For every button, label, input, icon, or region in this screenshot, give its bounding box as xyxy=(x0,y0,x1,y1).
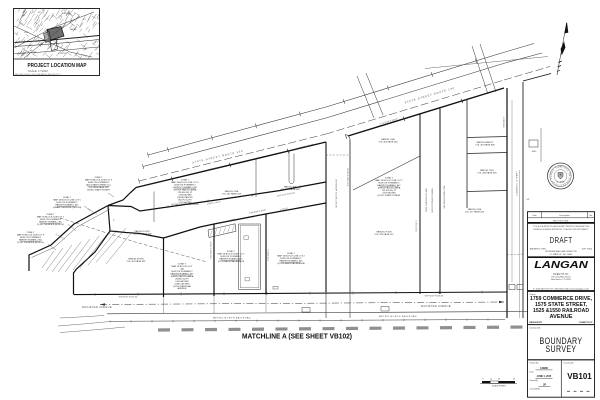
svg-text:METRO-NORTH RAILROAD: METRO-NORTH RAILROAD xyxy=(213,316,251,319)
svg-text:AVENUE: AVENUE xyxy=(550,314,573,320)
svg-text:CONN TPKE: CONN TPKE xyxy=(58,53,67,55)
svg-text:Drawn By: Drawn By xyxy=(530,379,538,382)
svg-text:No.: No. xyxy=(589,215,593,217)
svg-text:N 02°32'05″ E 185.07': N 02°32'05″ E 185.07' xyxy=(211,241,213,259)
svg-text:No. 70085: No. 70085 xyxy=(557,182,565,184)
svg-text:15: 15 xyxy=(490,379,492,381)
svg-text:VOL 407 PAGE 498: VOL 407 PAGE 498 xyxy=(476,144,496,147)
svg-text:S 01°14'40″ W 105.50': S 01°14'40″ W 105.50' xyxy=(348,167,350,186)
svg-text:MAP 18 BLOCK 1238 LOT 1A: MAP 18 BLOCK 1238 LOT 1A xyxy=(443,185,446,209)
svg-text:@760 TURNPIKE (NORTH): @760 TURNPIKE (NORTH) xyxy=(17,242,44,244)
svg-text:@759 RAILROAD AVENUE: @759 RAILROAD AVENUE xyxy=(218,260,245,263)
svg-text:SHED: SHED xyxy=(532,151,537,153)
svg-text:SUP. 70005: SUP. 70005 xyxy=(582,248,592,250)
svg-text:VB101: VB101 xyxy=(567,372,592,381)
svg-text:CT STATE LIC. NO. 70085: CT STATE LIC. NO. 70085 xyxy=(550,253,572,256)
svg-text:60: 60 xyxy=(513,379,515,381)
svg-text:Drawing Title: Drawing Title xyxy=(530,327,541,330)
svg-text:140286: 140286 xyxy=(540,367,548,370)
svg-text:ZONE 'I' MAP 18 BLOCK 1238: ZONE 'I' MAP 18 BLOCK 1238 xyxy=(425,188,428,211)
svg-text:Project No.: Project No. xyxy=(530,362,540,365)
svg-text:N/F: N/F xyxy=(527,199,530,201)
svg-text:I-95: I-95 xyxy=(84,49,87,51)
svg-text:S 89°06'42″ W 421.60': S 89°06'42″ W 421.60' xyxy=(119,296,138,298)
svg-text:VOL 282 PAGE 280: VOL 282 PAGE 280 xyxy=(379,141,399,144)
svg-text:Langan CT, Inc.: Langan CT, Inc. xyxy=(553,273,569,275)
svg-text:METRO-NORTH RAILROAD: METRO-NORTH RAILROAD xyxy=(379,315,417,318)
svg-text:UNDER A LICENSED SURVEYOR, TO: UNDER A LICENSED SURVEYOR, TO ALTER THIS… xyxy=(533,228,589,231)
svg-text:N 01°21'24″ E: N 01°21'24″ E xyxy=(504,116,506,127)
svg-text:SCALE: 1″=2000': SCALE: 1″=2000' xyxy=(28,69,49,73)
svg-text:BPT: BPT xyxy=(38,12,41,14)
svg-text:NOW OR FORMERLY HUBBELL: NOW OR FORMERLY HUBBELL xyxy=(432,187,434,212)
svg-text:New Haven, CT 06511: New Haven, CT 06511 xyxy=(551,279,572,281)
svg-text:PROFESSIONAL LAND SURVEYOR: PROFESSIONAL LAND SURVEYOR xyxy=(545,250,577,253)
svg-text:0: 0 xyxy=(483,379,484,381)
svg-text:LANGAN: LANGAN xyxy=(534,260,588,271)
svg-text:Date: Date xyxy=(530,370,534,373)
svg-text:@MAIN TURNPIKE (NORTH): @MAIN TURNPIKE (NORTH) xyxy=(53,206,82,209)
svg-text:S 89°06'42″ W 385.90': S 89°06'42″ W 385.90' xyxy=(425,295,444,297)
svg-text:SCALE IN FEET: SCALE IN FEET xyxy=(492,385,507,388)
svg-text:PROJECT LOCATION MAP: PROJECT LOCATION MAP xyxy=(28,63,87,69)
svg-text:Checked By: Checked By xyxy=(530,388,540,390)
svg-text:N 01°21'24″ E: N 01°21'24″ E xyxy=(416,220,418,232)
svg-text:RAILROAD AVENUE: RAILROAD AVENUE xyxy=(82,306,112,309)
svg-text:RT 1: RT 1 xyxy=(83,19,86,21)
svg-text:VOL 407 PAGE 284: VOL 407 PAGE 284 xyxy=(133,233,153,236)
svg-text:@1759 COMMERCE DRIVE: @1759 COMMERCE DRIVE xyxy=(171,204,199,206)
svg-text:MATCHLINE A (SEE SHEET VB102): MATCHLINE A (SEE SHEET VB102) xyxy=(242,331,352,340)
svg-text:VOL 421 PAGE 387: VOL 421 PAGE 387 xyxy=(127,260,147,263)
svg-text:Drawing No.: Drawing No. xyxy=(564,362,575,365)
svg-text:T: 203.562.5771 F: 203.562.5: T: 203.562.5771 F: 203.562.5162 www.lang… xyxy=(533,288,589,290)
svg-text:555 Long Wharf Drive: 555 Long Wharf Drive xyxy=(551,276,571,278)
svg-text:N 01°55'24″ E: N 01°55'24″ E xyxy=(268,249,270,261)
svg-text:BRIDGEPORT: BRIDGEPORT xyxy=(530,322,543,324)
svg-text:"IT IS A VIOLATION OF LAW FOR: "IT IS A VIOLATION OF LAW FOR ANY PERSON… xyxy=(533,225,590,228)
svg-text:@1550 RAILROAD AVENUE: @1550 RAILROAD AVENUE xyxy=(277,262,305,265)
svg-text:DRAFT: DRAFT xyxy=(550,236,573,245)
svg-text:LOBDELL STREET: LOBDELL STREET xyxy=(517,170,519,195)
svg-text:VOL 282 PAGE 147: VOL 282 PAGE 147 xyxy=(375,233,395,236)
svg-text:JUNE 1, 2015: JUNE 1, 2015 xyxy=(537,376,552,378)
svg-text:@760 TURNPIKE (NORTH): @760 TURNPIKE (NORTH) xyxy=(37,224,64,226)
svg-text:VOL 286 PAGE 359: VOL 286 PAGE 359 xyxy=(478,172,498,175)
svg-text:Description: Description xyxy=(559,214,569,217)
svg-text:30: 30 xyxy=(498,379,500,381)
svg-text:JR: JR xyxy=(543,384,546,386)
svg-text:SURVEY: SURVEY xyxy=(546,344,577,354)
svg-text:RAILROAD AVENUE: RAILROAD AVENUE xyxy=(421,305,451,308)
svg-text:VOL 262 PAGE 406: VOL 262 PAGE 406 xyxy=(281,188,301,191)
svg-text:AVENUE: AVENUE xyxy=(178,287,187,290)
svg-text:@1805 STATE STREET: @1805 STATE STREET xyxy=(87,189,111,192)
svg-text:CONNECTICUT: CONNECTICUT xyxy=(579,322,594,324)
svg-text:ANDREW G. IVES: ANDREW G. IVES xyxy=(530,247,546,250)
svg-text:@1575 STATE STREET: @1575 STATE STREET xyxy=(377,194,401,197)
svg-text:VOL 277 PAGE 456: VOL 277 PAGE 456 xyxy=(465,211,485,214)
svg-text:VOL 282 PAGE 358: VOL 282 PAGE 358 xyxy=(222,193,242,196)
svg-text:BOSTWICK AVENUE: BOSTWICK AVENUE xyxy=(335,179,338,208)
